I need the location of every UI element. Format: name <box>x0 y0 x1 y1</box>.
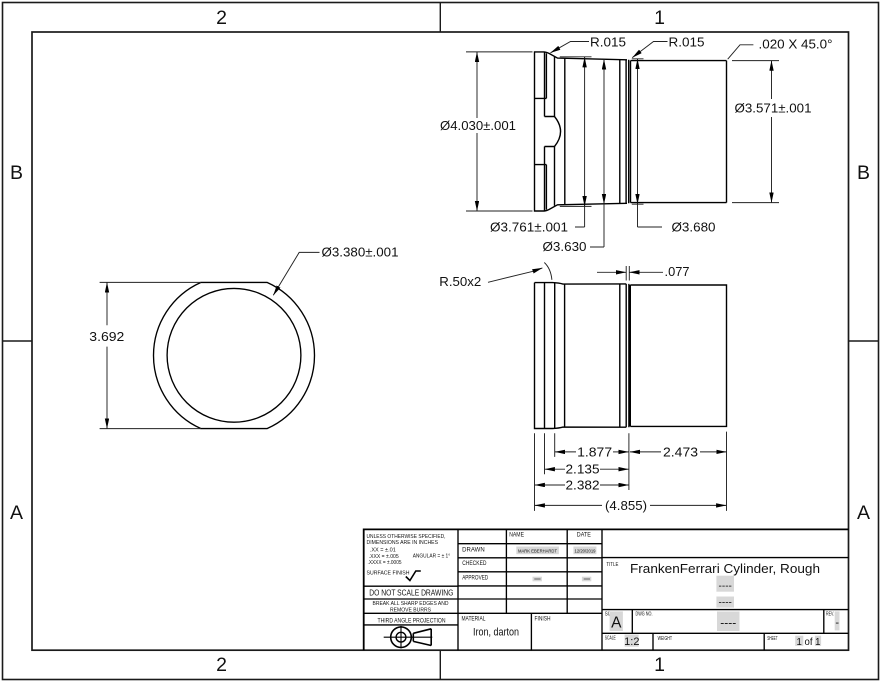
svg-text:(4.855): (4.855) <box>605 499 647 513</box>
svg-text:2: 2 <box>216 7 227 29</box>
svg-text:MATERIAL: MATERIAL <box>462 616 487 622</box>
svg-text:FrankenFerrari Cylinder, Rough: FrankenFerrari Cylinder, Rough <box>630 561 820 576</box>
svg-text:SURFACE FINISH: SURFACE FINISH <box>367 570 410 576</box>
svg-text:Ø3.680: Ø3.680 <box>672 220 716 234</box>
svg-text:DO NOT SCALE DRAWING: DO NOT SCALE DRAWING <box>369 588 453 597</box>
svg-text:DWG NO.: DWG NO. <box>636 611 653 617</box>
svg-text:.XXXX = ±.0005: .XXXX = ±.0005 <box>368 560 402 566</box>
svg-text:2.473: 2.473 <box>663 445 698 459</box>
svg-text:REV.: REV. <box>826 611 834 617</box>
svg-text:MARK EBERHARDT: MARK EBERHARDT <box>518 548 557 554</box>
svg-text:Ø3.571±.001: Ø3.571±.001 <box>735 102 812 116</box>
svg-text:.077: .077 <box>665 265 690 279</box>
svg-text:CHECKED: CHECKED <box>462 561 487 567</box>
svg-text:1.877: 1.877 <box>577 445 612 459</box>
svg-text:Ø4.030±.001: Ø4.030±.001 <box>440 119 516 133</box>
svg-text:1:2: 1:2 <box>624 636 639 648</box>
svg-text:NAME: NAME <box>509 533 524 539</box>
svg-text:SHEET: SHEET <box>767 636 778 642</box>
svg-text:.XX = ±.01: .XX = ±.01 <box>370 548 396 554</box>
svg-text:REMOVE BURRS: REMOVE BURRS <box>390 607 431 613</box>
svg-text:A: A <box>611 614 622 631</box>
svg-text:2.135: 2.135 <box>566 463 600 477</box>
svg-text:Ø3.630: Ø3.630 <box>543 240 587 254</box>
svg-text:DATE: DATE <box>577 533 591 539</box>
svg-text:2.382: 2.382 <box>566 478 600 492</box>
svg-text:B: B <box>857 162 870 184</box>
svg-text:1 of 1: 1 of 1 <box>797 636 821 648</box>
svg-text:----: ---- <box>719 598 732 609</box>
svg-text:B: B <box>10 162 23 184</box>
svg-text:1: 1 <box>654 654 665 676</box>
svg-text:R.015: R.015 <box>590 36 626 50</box>
svg-text:.XXX = ±.005: .XXX = ±.005 <box>369 554 399 560</box>
svg-text:1: 1 <box>654 7 665 29</box>
svg-text:Ø3.761±.001: Ø3.761±.001 <box>490 220 568 234</box>
svg-text:A: A <box>857 502 870 524</box>
svg-text:.020 X 45.0°: .020 X 45.0° <box>759 38 833 52</box>
svg-text:3.692: 3.692 <box>89 330 124 344</box>
svg-text:APPROVED: APPROVED <box>462 576 489 582</box>
svg-text:R.015: R.015 <box>669 36 705 50</box>
svg-text:THIRD ANGLE PROJECTION: THIRD ANGLE PROJECTION <box>378 617 446 624</box>
svg-text:12/20/2019: 12/20/2019 <box>575 548 596 554</box>
svg-text:WEIGHT: WEIGHT <box>658 636 673 642</box>
svg-text:SCALE: SCALE <box>605 636 616 642</box>
svg-text:2: 2 <box>216 654 227 676</box>
svg-text:DIMENSIONS ARE IN INCHES: DIMENSIONS ARE IN INCHES <box>367 540 439 546</box>
svg-text:BREAK ALL SHARP EDGES AND: BREAK ALL SHARP EDGES AND <box>373 601 449 607</box>
svg-text:Ø3.380±.001: Ø3.380±.001 <box>322 246 399 260</box>
svg-text:-: - <box>835 617 839 629</box>
svg-text:DRAWN: DRAWN <box>462 548 485 554</box>
svg-text:----: ---- <box>719 581 732 592</box>
svg-text:TITLE: TITLE <box>606 562 618 568</box>
svg-text:----: ---- <box>720 615 736 629</box>
svg-text:Iron, darton: Iron, darton <box>473 627 519 639</box>
svg-text:ANGULAR = ± 1°: ANGULAR = ± 1° <box>413 553 451 559</box>
svg-text:A: A <box>10 502 23 524</box>
svg-text:R.50x2: R.50x2 <box>439 275 481 289</box>
svg-text:FINISH: FINISH <box>535 616 551 622</box>
